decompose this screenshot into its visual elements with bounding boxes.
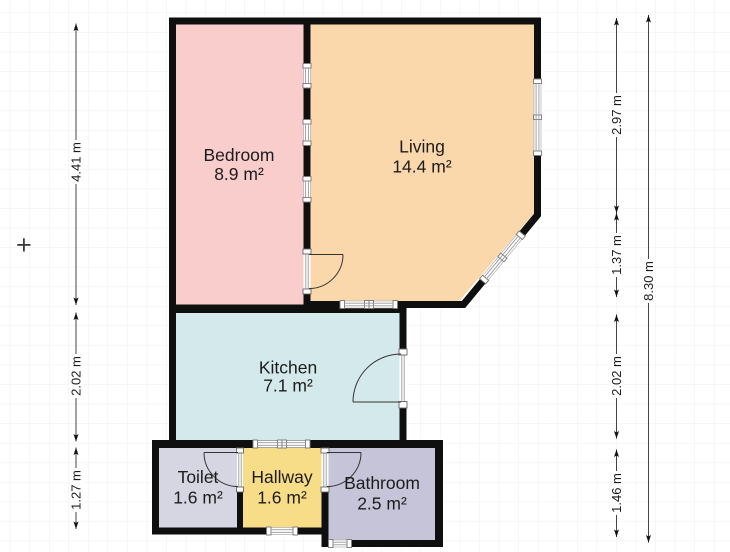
svg-text:Bedroom: Bedroom (203, 145, 274, 165)
svg-text:Hallway: Hallway (251, 467, 313, 487)
svg-text:Kitchen: Kitchen (259, 358, 317, 378)
svg-text:2.02 m: 2.02 m (69, 356, 84, 396)
svg-text:1.46 m: 1.46 m (609, 473, 624, 513)
svg-text:2.5 m²: 2.5 m² (357, 494, 407, 514)
svg-text:Living: Living (399, 137, 445, 157)
svg-text:1.6 m²: 1.6 m² (257, 488, 307, 508)
svg-text:14.4 m²: 14.4 m² (392, 157, 451, 177)
svg-text:1.27 m: 1.27 m (69, 470, 84, 510)
svg-text:Toilet: Toilet (178, 467, 219, 487)
svg-text:7.1 m²: 7.1 m² (263, 376, 313, 396)
svg-text:8.9 m²: 8.9 m² (214, 164, 264, 184)
svg-text:4.41 m: 4.41 m (69, 142, 84, 182)
svg-text:1.6 m²: 1.6 m² (173, 488, 223, 508)
svg-text:2.97 m: 2.97 m (609, 95, 624, 135)
svg-text:2.02 m: 2.02 m (609, 356, 624, 396)
svg-text:Bathroom: Bathroom (344, 473, 420, 493)
svg-text:1.37 m: 1.37 m (609, 235, 624, 275)
svg-text:8.30 m: 8.30 m (641, 261, 656, 301)
